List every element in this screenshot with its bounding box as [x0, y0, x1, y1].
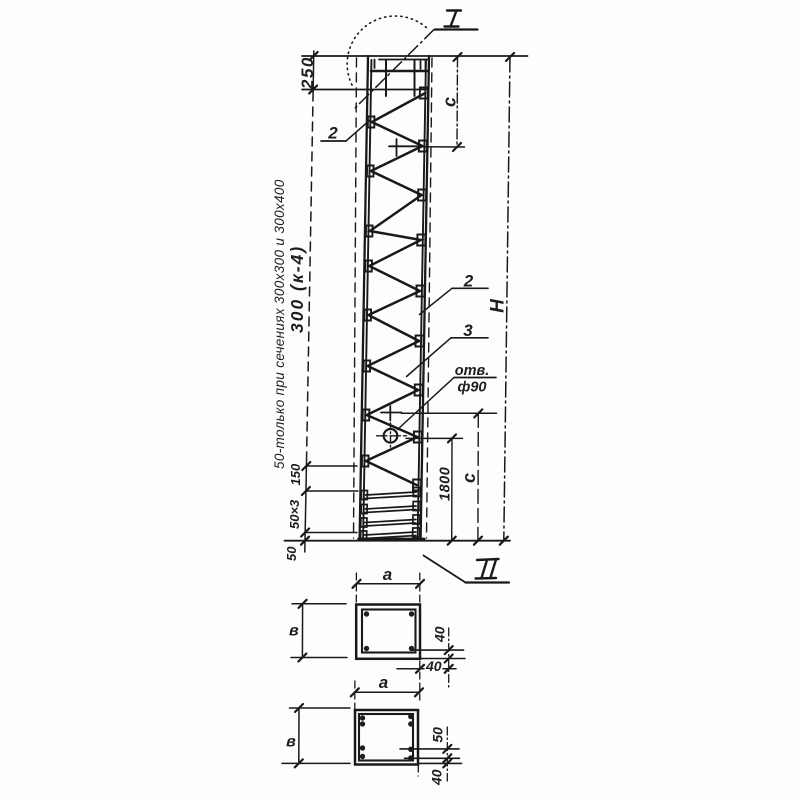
svg-text:40: 40: [425, 658, 442, 674]
svg-text:40: 40: [432, 626, 448, 643]
svg-text:Н: Н: [488, 298, 509, 313]
svg-text:250: 250: [298, 56, 317, 90]
svg-text:1800: 1800: [438, 467, 454, 501]
svg-text:300 (к-4): 300 (к-4): [287, 245, 307, 333]
svg-text:ф90: ф90: [458, 380, 487, 396]
svg-text:в: в: [286, 734, 296, 751]
svg-text:50: 50: [430, 727, 446, 743]
svg-text:c: c: [440, 97, 460, 107]
svg-text:a: a: [379, 673, 388, 692]
svg-text:50-только при сечениях 300х300: 50-только при сечениях 300х300 и 300х400: [272, 179, 287, 469]
svg-text:40: 40: [429, 769, 445, 786]
svg-text:50×3: 50×3: [287, 499, 302, 529]
svg-text:a: a: [383, 565, 392, 584]
svg-text:отв.: отв.: [455, 363, 490, 379]
svg-text:c: c: [459, 473, 479, 483]
svg-text:150: 150: [288, 463, 303, 485]
svg-text:в: в: [289, 623, 299, 640]
svg-text:50: 50: [284, 546, 299, 561]
svg-text:2: 2: [327, 124, 338, 143]
